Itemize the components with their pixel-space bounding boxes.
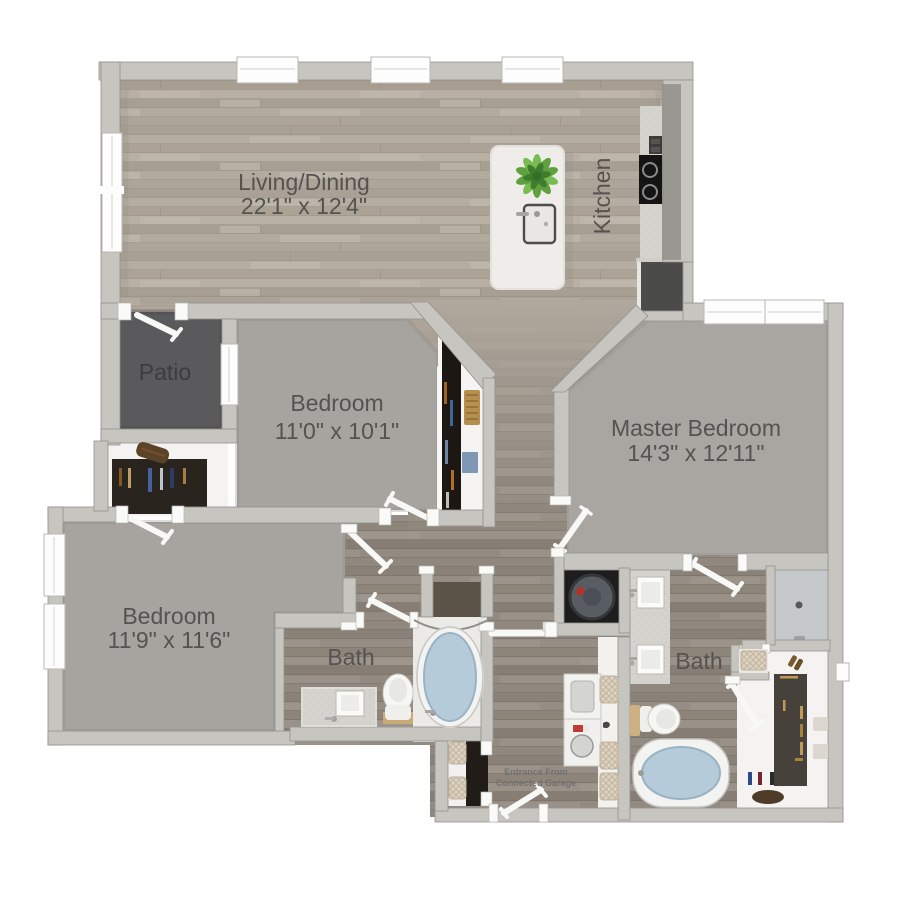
svg-text:Bath: Bath [327, 644, 374, 670]
svg-text:Bedroom: Bedroom [122, 603, 215, 629]
svg-text:14'3" x 12'11": 14'3" x 12'11" [627, 440, 764, 466]
svg-text:11'0" x 10'1": 11'0" x 10'1" [275, 418, 399, 444]
svg-text:Bath: Bath [675, 648, 722, 674]
svg-text:Kitchen: Kitchen [589, 158, 615, 235]
svg-text:Patio: Patio [139, 359, 191, 385]
svg-text:Bedroom: Bedroom [290, 390, 383, 416]
svg-text:Master Bedroom: Master Bedroom [611, 415, 781, 441]
svg-text:Entrance From: Entrance From [504, 767, 568, 777]
svg-text:22'1" x 12'4": 22'1" x 12'4" [241, 193, 367, 219]
svg-text:Connected Garage: Connected Garage [496, 778, 576, 788]
svg-text:11'9" x 11'6": 11'9" x 11'6" [108, 627, 231, 653]
svg-text:Living/Dining: Living/Dining [238, 169, 370, 195]
